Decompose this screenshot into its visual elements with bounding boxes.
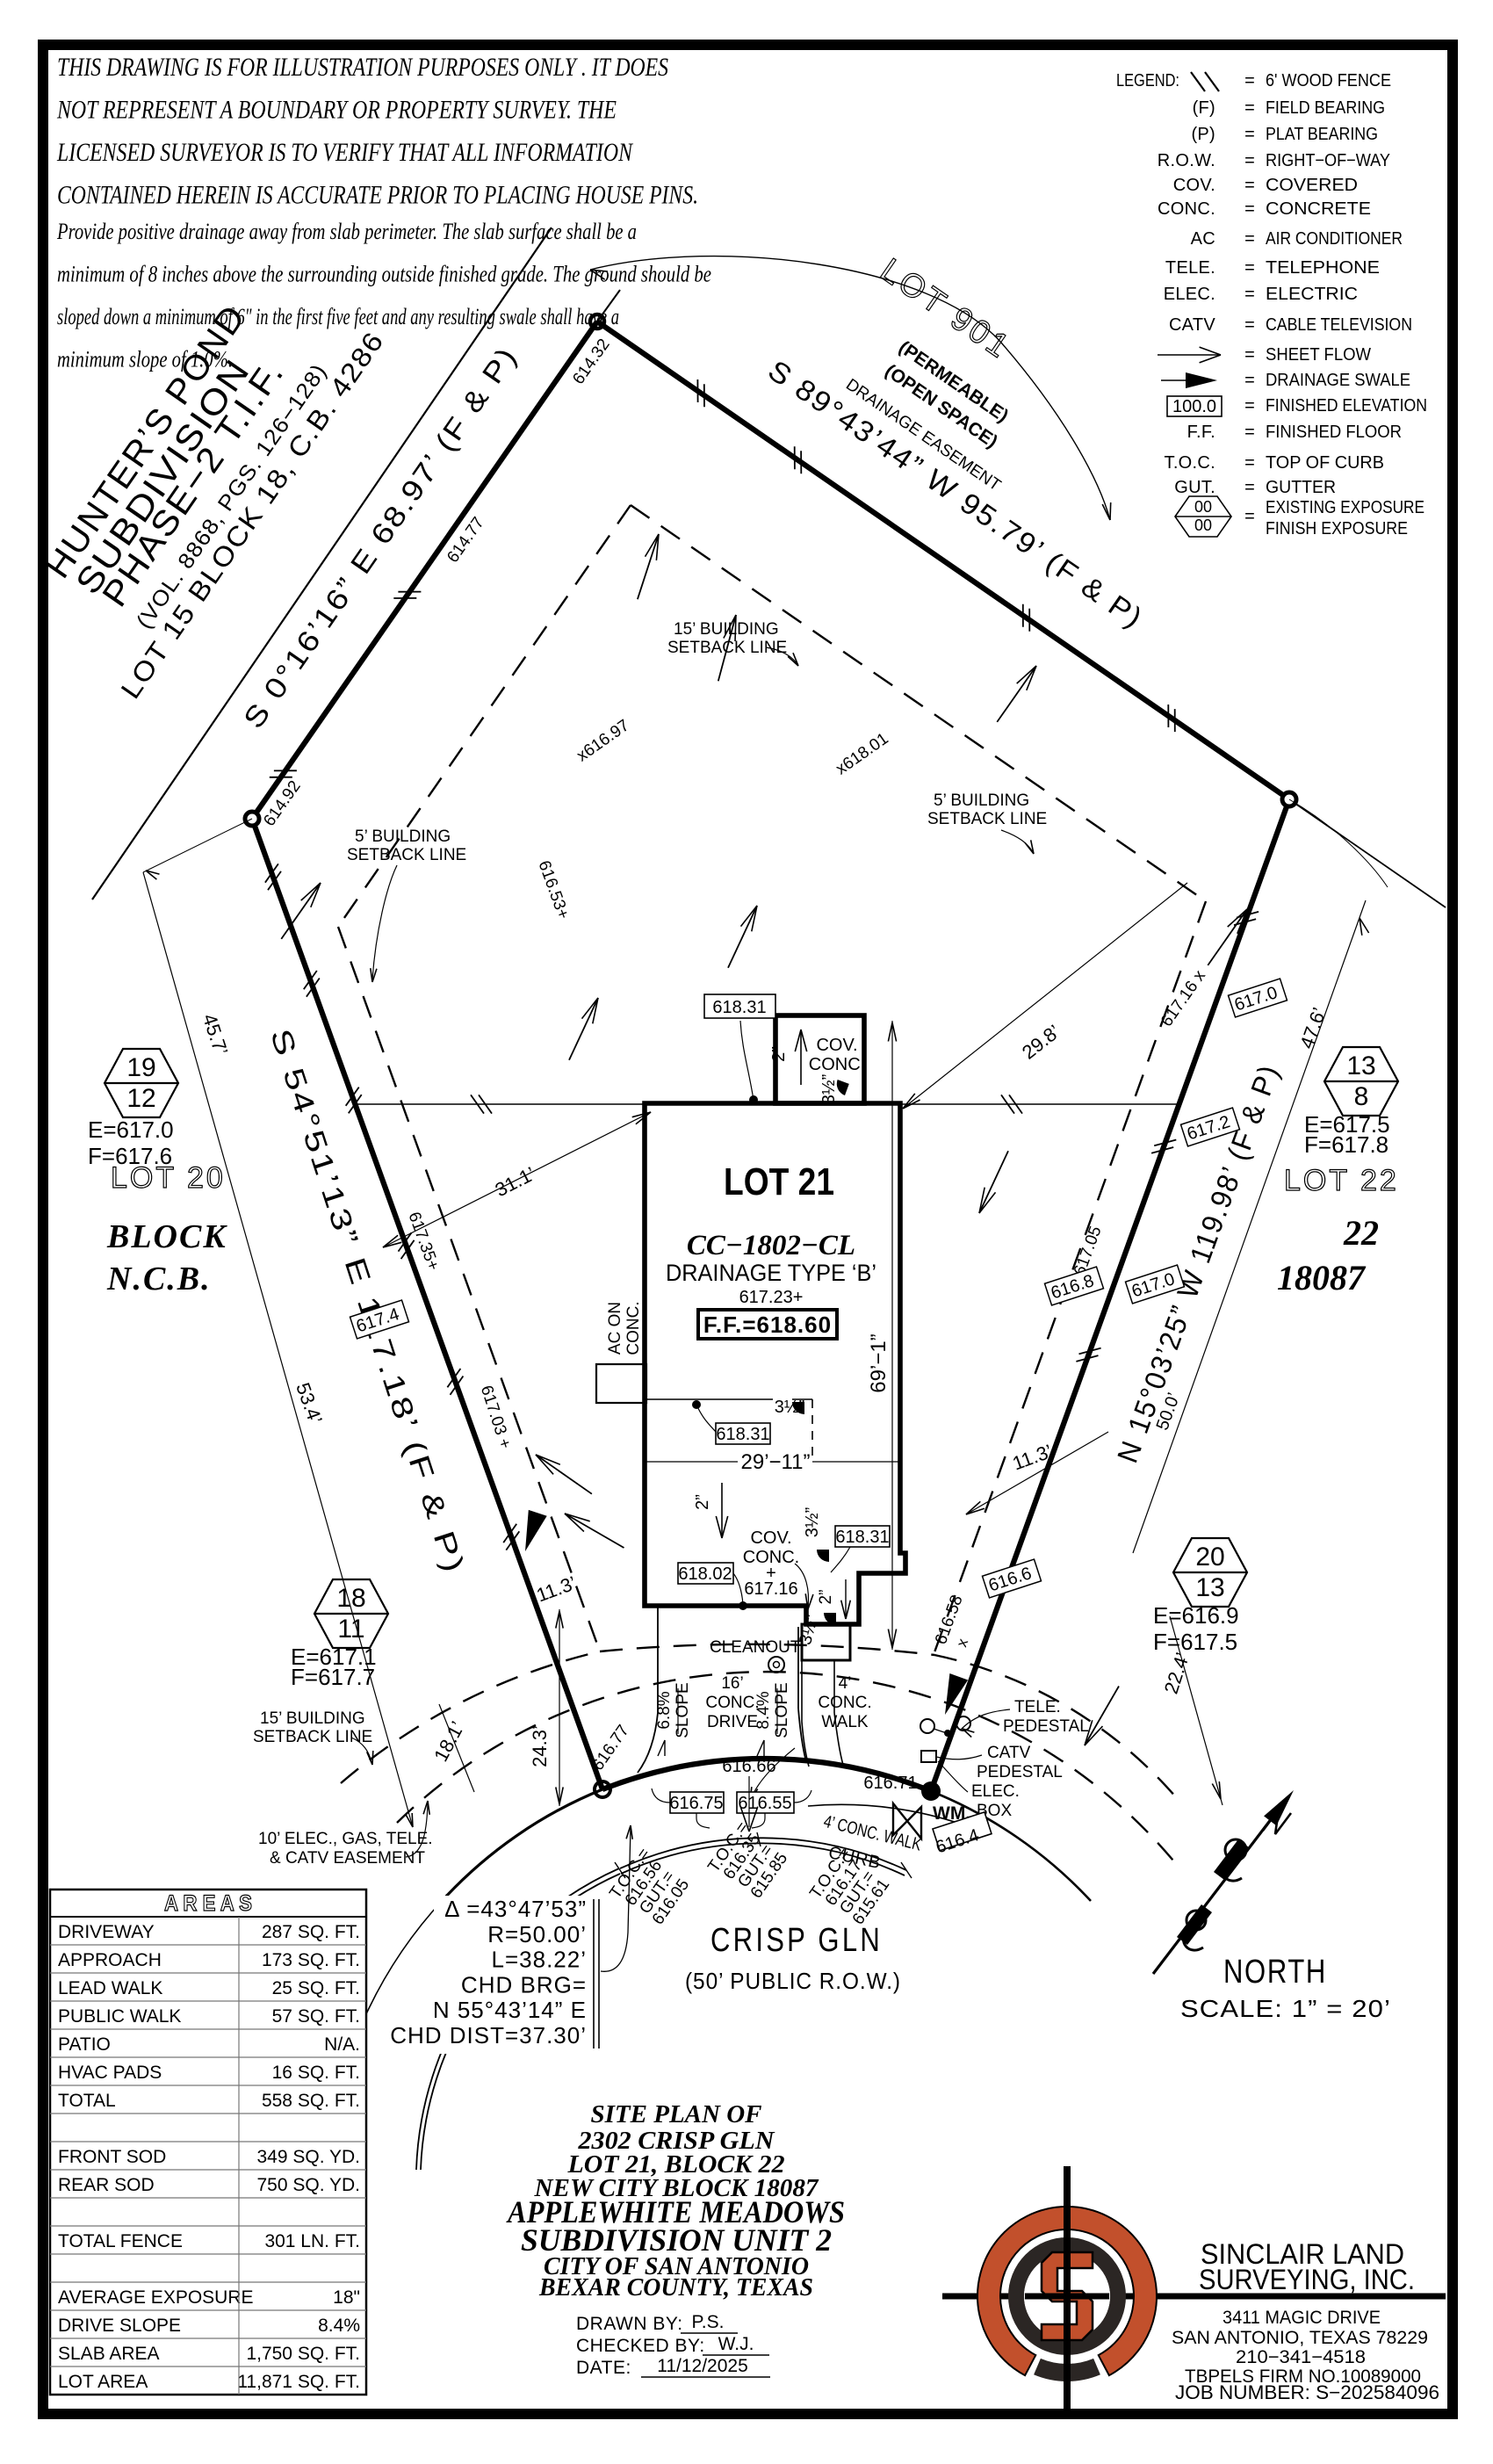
svg-text:PATIO: PATIO xyxy=(58,2034,111,2055)
svg-text:R=50.00’: R=50.00’ xyxy=(487,1921,587,1947)
svg-text:FINISH EXPOSURE: FINISH EXPOSURE xyxy=(1266,519,1408,538)
svg-text:618.31: 618.31 xyxy=(835,1528,889,1547)
svg-text:=: = xyxy=(1244,229,1255,249)
svg-text:CONC.: CONC. xyxy=(809,1055,865,1074)
svg-text:CONC.: CONC. xyxy=(818,1694,871,1712)
svg-text:SLAB AREA: SLAB AREA xyxy=(58,2344,160,2364)
svg-text:CRISP GLN: CRISP GLN xyxy=(710,1922,883,1959)
svg-text:=: = xyxy=(1244,125,1255,144)
svg-text:CONCRETE: CONCRETE xyxy=(1266,199,1371,219)
svg-text:18087: 18087 xyxy=(1277,1258,1367,1297)
svg-text:F=617.7: F=617.7 xyxy=(291,1664,375,1690)
svg-text:W.J.: W.J. xyxy=(718,2334,754,2354)
svg-text:NOT REPRESENT A BOUNDARY OR PR: NOT REPRESENT A BOUNDARY OR PROPERTY SUR… xyxy=(56,96,617,125)
svg-text:616.71: 616.71 xyxy=(863,1774,917,1793)
svg-text:618.31: 618.31 xyxy=(712,998,766,1017)
svg-text:Δ =43°47’53”: Δ =43°47’53” xyxy=(444,1896,587,1922)
svg-text:TELE.: TELE. xyxy=(1165,258,1215,278)
svg-text:A R E A S: A R E A S xyxy=(164,1891,252,1916)
svg-text:618.31: 618.31 xyxy=(716,1425,769,1444)
svg-text:HVAC PADS: HVAC PADS xyxy=(58,2063,162,2083)
svg-text:6' WOOD FENCE: 6' WOOD FENCE xyxy=(1266,71,1391,90)
svg-text:TELEPHONE: TELEPHONE xyxy=(1266,258,1380,278)
svg-text:24.3’: 24.3’ xyxy=(529,1725,551,1767)
svg-text:TOTAL: TOTAL xyxy=(58,2091,116,2111)
svg-text:13: 13 xyxy=(1346,1051,1375,1080)
svg-text:ELEC.: ELEC. xyxy=(971,1782,1020,1801)
svg-text:=: = xyxy=(1244,71,1255,90)
svg-text:3½”: 3½” xyxy=(803,1507,822,1537)
svg-text:8.4%: 8.4% xyxy=(318,2316,360,2336)
svg-text:ELEC.: ELEC. xyxy=(1164,285,1215,304)
svg-text:F=617.8: F=617.8 xyxy=(1304,1131,1388,1158)
svg-text:00: 00 xyxy=(1194,498,1212,516)
svg-text:CABLE TELEVISION: CABLE TELEVISION xyxy=(1266,315,1412,335)
svg-text:SLOPE: SLOPE xyxy=(674,1682,692,1738)
svg-text:=: = xyxy=(1244,199,1255,219)
svg-text:SAN ANTONIO, TEXAS 78229: SAN ANTONIO, TEXAS 78229 xyxy=(1172,2328,1428,2348)
svg-text:PEDESTAL: PEDESTAL xyxy=(1003,1717,1089,1736)
svg-text:3411 MAGIC DRIVE: 3411 MAGIC DRIVE xyxy=(1223,2308,1381,2328)
svg-text:DATE:: DATE: xyxy=(576,2358,631,2378)
svg-text:5’ BUILDING: 5’ BUILDING xyxy=(355,827,451,846)
svg-text:10’ ELEC., GAS, TELE.: 10’ ELEC., GAS, TELE. xyxy=(258,1830,433,1848)
svg-text:19: 19 xyxy=(126,1053,155,1082)
svg-text:COV.: COV. xyxy=(750,1528,791,1548)
svg-text:E=616.9: E=616.9 xyxy=(1153,1602,1239,1629)
svg-text:18": 18" xyxy=(333,2287,360,2308)
svg-text:THIS DRAWING IS FOR ILLUSTRATI: THIS DRAWING IS FOR ILLUSTRATION PURPOSE… xyxy=(57,53,668,82)
svg-text:WALK: WALK xyxy=(821,1713,868,1731)
svg-text:22: 22 xyxy=(1343,1213,1379,1253)
svg-text:616.55: 616.55 xyxy=(738,1794,791,1813)
svg-text:6.8%: 6.8% xyxy=(655,1691,674,1729)
svg-text:5’ BUILDING: 5’ BUILDING xyxy=(934,791,1029,810)
svg-text:13: 13 xyxy=(1195,1573,1224,1602)
svg-text:COV.: COV. xyxy=(816,1036,857,1055)
svg-text:PEDESTAL: PEDESTAL xyxy=(977,1763,1063,1781)
svg-text:11,871 SQ. FT.: 11,871 SQ. FT. xyxy=(237,2372,360,2392)
svg-text:APPROACH: APPROACH xyxy=(58,1950,162,1970)
svg-text:CONC.: CONC. xyxy=(624,1301,643,1355)
svg-text:AC: AC xyxy=(1191,229,1215,249)
svg-text:CATV: CATV xyxy=(987,1744,1031,1762)
svg-text:25 SQ. FT.: 25 SQ. FT. xyxy=(272,1978,360,1998)
svg-text:(P): (P) xyxy=(1191,125,1215,144)
svg-text:EXISTING EXPOSURE: EXISTING EXPOSURE xyxy=(1266,498,1424,517)
svg-text:L=38.22’: L=38.22’ xyxy=(492,1947,587,1973)
svg-text:349 SQ. YD.: 349 SQ. YD. xyxy=(256,2147,360,2167)
svg-text:DRIVEWAY: DRIVEWAY xyxy=(58,1922,155,1942)
svg-text:FINISHED ELEVATION: FINISHED ELEVATION xyxy=(1266,396,1427,415)
svg-text:558 SQ. FT.: 558 SQ. FT. xyxy=(262,2091,360,2111)
svg-text:(50’ PUBLIC R.O.W.): (50’ PUBLIC R.O.W.) xyxy=(685,1968,901,1994)
svg-text:ELECTRIC: ELECTRIC xyxy=(1266,285,1358,304)
svg-text:173 SQ. FT.: 173 SQ. FT. xyxy=(262,1950,360,1970)
svg-text:RIGHT−OF−WAY: RIGHT−OF−WAY xyxy=(1266,151,1390,170)
svg-text:618.02: 618.02 xyxy=(678,1564,732,1584)
svg-text:LOT 21: LOT 21 xyxy=(724,1160,834,1203)
svg-text:FIELD BEARING: FIELD BEARING xyxy=(1266,98,1385,118)
svg-text:COV.: COV. xyxy=(1173,176,1215,195)
svg-text:T.O.C.: T.O.C. xyxy=(1165,453,1215,473)
svg-text:DRAINAGE TYPE ‘B’: DRAINAGE TYPE ‘B’ xyxy=(666,1260,876,1286)
svg-text:BLOCK: BLOCK xyxy=(106,1218,227,1255)
svg-text:2”: 2” xyxy=(817,1590,835,1605)
svg-text:sloped down a minimum of 6" in: sloped down a minimum of 6" in the first… xyxy=(57,304,619,329)
svg-text:12: 12 xyxy=(126,1084,155,1113)
svg-text:TOP OF CURB: TOP OF CURB xyxy=(1266,453,1384,473)
svg-text:AC ON: AC ON xyxy=(606,1302,624,1355)
svg-text:DRIVE SLOPE: DRIVE SLOPE xyxy=(58,2316,181,2336)
svg-text:1,750 SQ. FT.: 1,750 SQ. FT. xyxy=(246,2344,360,2364)
svg-text:SURVEYING, INC.: SURVEYING, INC. xyxy=(1199,2264,1415,2295)
svg-text:CONC.: CONC. xyxy=(705,1694,759,1712)
svg-text:LICENSED SURVEYOR IS TO VERIFY: LICENSED SURVEYOR IS TO VERIFY THAT ALL … xyxy=(56,138,633,167)
svg-text:SLOPE: SLOPE xyxy=(773,1682,791,1738)
svg-text:16 SQ. FT.: 16 SQ. FT. xyxy=(272,2063,360,2083)
svg-text:P.S.: P.S. xyxy=(692,2312,725,2332)
svg-text:2”: 2” xyxy=(769,1046,789,1062)
svg-text:=: = xyxy=(1244,315,1255,335)
svg-text:=: = xyxy=(1244,507,1255,526)
svg-text:F=617.5: F=617.5 xyxy=(1153,1629,1237,1655)
svg-text:GUT.: GUT. xyxy=(1174,478,1215,497)
svg-text:=: = xyxy=(1244,258,1255,278)
svg-text:BEXAR COUNTY, TEXAS: BEXAR COUNTY, TEXAS xyxy=(538,2273,813,2301)
svg-text:8: 8 xyxy=(1354,1082,1369,1111)
svg-text:617.23+: 617.23+ xyxy=(739,1288,804,1307)
svg-text:SETBACK LINE: SETBACK LINE xyxy=(347,846,466,864)
svg-text:AVERAGE EXPOSURE: AVERAGE EXPOSURE xyxy=(58,2287,254,2308)
svg-text:616.66: 616.66 xyxy=(722,1757,775,1776)
svg-text:=: = xyxy=(1244,453,1255,473)
svg-text:PLAT BEARING: PLAT BEARING xyxy=(1266,125,1378,144)
svg-text:15’ BUILDING: 15’ BUILDING xyxy=(260,1709,365,1728)
svg-text:4’: 4’ xyxy=(839,1674,852,1693)
svg-text:F.F.: F.F. xyxy=(1187,423,1215,442)
svg-text:CHECKED BY:: CHECKED BY: xyxy=(576,2336,705,2356)
svg-text:JOB NUMBER: S−202584096: JOB NUMBER: S−202584096 xyxy=(1175,2381,1439,2403)
svg-text:REAR SOD: REAR SOD xyxy=(58,2175,155,2195)
svg-text:CONTAINED HEREIN IS ACCURATE P: CONTAINED HEREIN IS ACCURATE PRIOR TO PL… xyxy=(57,181,698,210)
svg-text:F.F.=618.60: F.F.=618.60 xyxy=(703,1311,832,1338)
svg-text:CHD DIST=37.30’: CHD DIST=37.30’ xyxy=(390,2022,587,2049)
svg-text:750 SQ. YD.: 750 SQ. YD. xyxy=(256,2175,360,2195)
svg-text:SETBACK LINE: SETBACK LINE xyxy=(253,1728,372,1746)
svg-text:00: 00 xyxy=(1194,517,1212,534)
svg-text:CATV: CATV xyxy=(1169,315,1215,335)
svg-text:N/A.: N/A. xyxy=(324,2034,360,2055)
svg-text:CONC.: CONC. xyxy=(1158,199,1215,219)
svg-text:=: = xyxy=(1244,151,1255,170)
svg-text:57 SQ. FT.: 57 SQ. FT. xyxy=(272,2006,360,2027)
svg-text:DRIVE: DRIVE xyxy=(707,1713,758,1731)
svg-text:=: = xyxy=(1244,98,1255,118)
svg-text:LOT 22: LOT 22 xyxy=(1284,1164,1399,1197)
svg-text:TELE.: TELE. xyxy=(1014,1698,1061,1716)
svg-text:N 55°43’14” E: N 55°43’14” E xyxy=(433,1997,587,2023)
svg-text:11: 11 xyxy=(337,1615,364,1644)
svg-text:NORTH: NORTH xyxy=(1223,1954,1327,1991)
svg-text:11/12/2025: 11/12/2025 xyxy=(657,2356,748,2376)
svg-text:=: = xyxy=(1244,285,1255,304)
svg-text:=: = xyxy=(1244,176,1255,195)
svg-text:SETBACK LINE: SETBACK LINE xyxy=(927,810,1047,828)
svg-text:N.C.B.: N.C.B. xyxy=(106,1261,212,1297)
svg-text:E=617.0: E=617.0 xyxy=(88,1116,174,1143)
svg-text:SHEET FLOW: SHEET FLOW xyxy=(1266,345,1371,365)
svg-text:CHD BRG=: CHD BRG= xyxy=(461,1971,587,1998)
svg-text:TOTAL FENCE: TOTAL FENCE xyxy=(58,2231,183,2251)
svg-text:FINISHED FLOOR: FINISHED FLOOR xyxy=(1266,423,1402,442)
svg-text:100.0: 100.0 xyxy=(1172,397,1216,416)
svg-text:R.O.W.: R.O.W. xyxy=(1158,151,1215,170)
svg-text:=: = xyxy=(1244,423,1255,442)
svg-text:20: 20 xyxy=(1195,1543,1224,1572)
svg-text:(F): (F) xyxy=(1193,98,1215,118)
svg-text:301 LN. FT.: 301 LN. FT. xyxy=(264,2231,360,2251)
svg-text:AIR CONDITIONER: AIR CONDITIONER xyxy=(1266,229,1403,249)
svg-text:DRAWN BY:: DRAWN BY: xyxy=(576,2314,683,2334)
svg-text:15’ BUILDING: 15’ BUILDING xyxy=(674,620,779,639)
svg-text:LEAD WALK: LEAD WALK xyxy=(58,1978,162,1998)
svg-text:& CATV EASEMENT: & CATV EASEMENT xyxy=(270,1849,425,1868)
svg-text:FRONT SOD: FRONT SOD xyxy=(58,2147,166,2167)
svg-text:LOT AREA: LOT AREA xyxy=(58,2372,148,2392)
svg-text:SCALE: 1” = 20’: SCALE: 1” = 20’ xyxy=(1180,1995,1391,2022)
svg-text:=: = xyxy=(1244,371,1255,390)
svg-text:=: = xyxy=(1244,478,1255,497)
svg-text:210−341−4518: 210−341−4518 xyxy=(1236,2347,1366,2367)
svg-text:69’−1”: 69’−1” xyxy=(867,1333,891,1392)
svg-text:287 SQ. FT.: 287 SQ. FT. xyxy=(262,1922,360,1942)
svg-text:8.4%: 8.4% xyxy=(754,1691,773,1729)
svg-text:LOT 20: LOT 20 xyxy=(111,1161,226,1195)
svg-text:CLEANOUT: CLEANOUT xyxy=(710,1638,801,1657)
svg-text:CC−1802−CL: CC−1802−CL xyxy=(687,1230,855,1261)
svg-text:29’−11”: 29’−11” xyxy=(741,1450,811,1474)
svg-text:LEGEND:: LEGEND: xyxy=(1116,71,1179,90)
svg-text:617.16: 617.16 xyxy=(744,1579,797,1599)
svg-text:16’: 16’ xyxy=(721,1674,743,1693)
svg-text:616.75: 616.75 xyxy=(669,1794,723,1813)
svg-text:=: = xyxy=(1244,396,1255,415)
svg-text:3½”: 3½” xyxy=(819,1074,839,1104)
svg-text:DRAINAGE SWALE: DRAINAGE SWALE xyxy=(1266,371,1410,390)
svg-text:GUTTER: GUTTER xyxy=(1266,478,1336,497)
svg-text:SITE PLAN OF: SITE PLAN OF xyxy=(591,2100,762,2128)
svg-text:PUBLIC WALK: PUBLIC WALK xyxy=(58,2006,181,2027)
svg-text:COVERED: COVERED xyxy=(1266,176,1358,195)
svg-text:2”: 2” xyxy=(693,1494,712,1510)
svg-text:=: = xyxy=(1244,345,1255,365)
